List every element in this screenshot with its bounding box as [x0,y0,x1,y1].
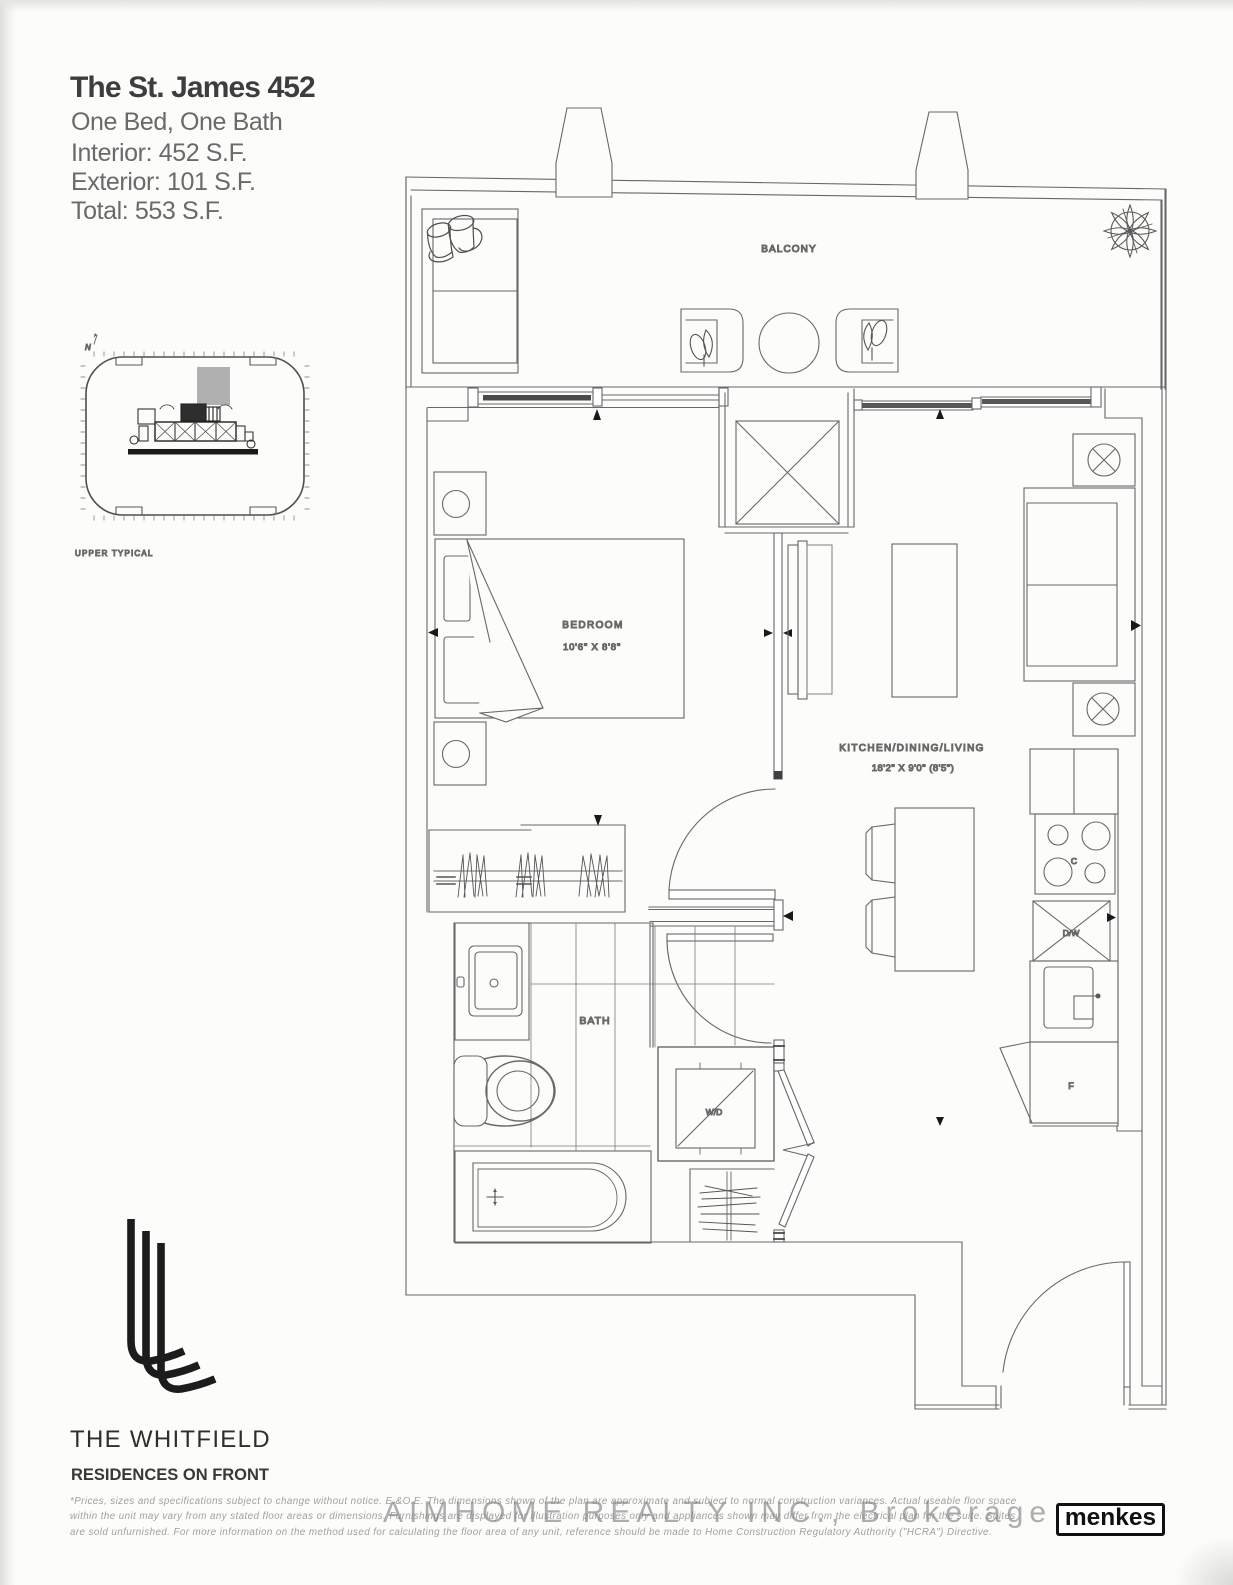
svg-text:BALCONY: BALCONY [761,244,817,255]
svg-text:W/D: W/D [706,1107,723,1117]
svg-text:C: C [1071,856,1077,866]
svg-text:F: F [1068,1081,1074,1091]
svg-text:N: N [85,343,91,352]
svg-text:BEDROOM: BEDROOM [562,620,623,631]
svg-text:10'6" X 8'8": 10'6" X 8'8" [563,642,621,653]
svg-text:UPPER TYPICAL: UPPER TYPICAL [75,549,154,558]
svg-text:18'2" X 9'0" (8'5"): 18'2" X 9'0" (8'5") [872,763,955,774]
svg-text:D/W: D/W [1063,928,1080,938]
svg-text:KITCHEN/DINING/LIVING: KITCHEN/DINING/LIVING [839,743,985,754]
svg-text:BATH: BATH [579,1015,610,1027]
